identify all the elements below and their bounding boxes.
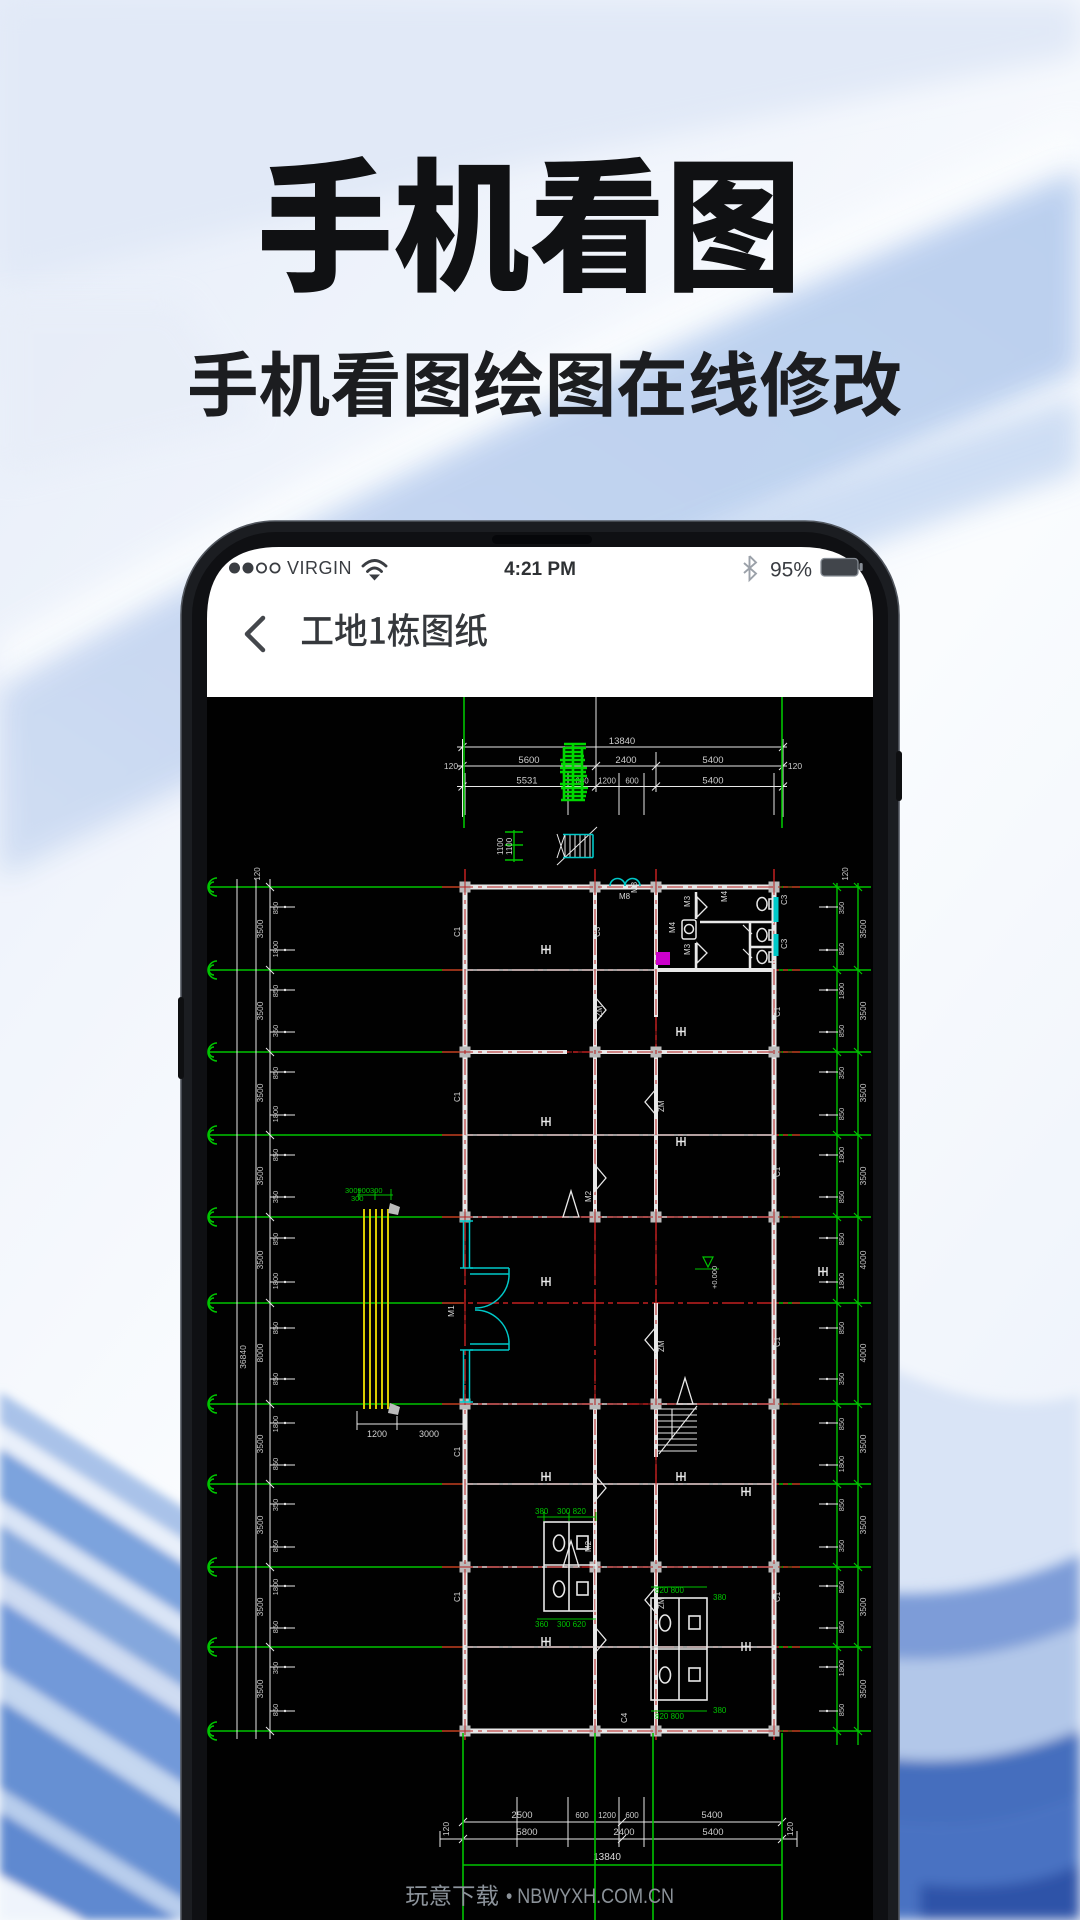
svg-text:350: 350 <box>837 1067 846 1080</box>
svg-text:120: 120 <box>441 1822 451 1836</box>
svg-text:VIRGIN: VIRGIN <box>287 558 352 578</box>
svg-text:850: 850 <box>271 1067 280 1080</box>
svg-text:850: 850 <box>837 943 846 956</box>
svg-text:850: 850 <box>271 985 280 998</box>
svg-text:850: 850 <box>837 1108 846 1121</box>
svg-text:600: 600 <box>625 1811 639 1820</box>
svg-text:120: 120 <box>788 761 802 771</box>
svg-text:380: 380 <box>535 1507 549 1516</box>
svg-text:1800: 1800 <box>271 1106 280 1123</box>
svg-text:3500: 3500 <box>255 1679 265 1698</box>
svg-text:13840: 13840 <box>593 1852 621 1863</box>
svg-text:350: 350 <box>271 1662 280 1675</box>
svg-text:5800: 5800 <box>516 1827 537 1838</box>
svg-text:300 820: 300 820 <box>557 1507 586 1516</box>
svg-text:350: 350 <box>837 1540 846 1553</box>
svg-text:8000: 8000 <box>255 1343 265 1362</box>
svg-text:820 800: 820 800 <box>655 1712 684 1721</box>
svg-text:3500: 3500 <box>858 919 868 938</box>
svg-text:600: 600 <box>625 777 639 786</box>
svg-text:1800: 1800 <box>837 1660 846 1677</box>
svg-text:1800: 1800 <box>271 1273 280 1290</box>
svg-text:850: 850 <box>271 1233 280 1246</box>
svg-text:5400: 5400 <box>701 1810 722 1821</box>
svg-text:350: 350 <box>271 1025 280 1038</box>
svg-text:850: 850 <box>837 1499 846 1512</box>
svg-text:850: 850 <box>271 1704 280 1717</box>
svg-text:850: 850 <box>837 1191 846 1204</box>
svg-text:M8: M8 <box>619 892 631 901</box>
svg-text:120: 120 <box>785 1822 795 1836</box>
svg-text:850: 850 <box>837 1621 846 1634</box>
svg-text:600: 600 <box>575 1811 589 1820</box>
svg-text:C1: C1 <box>453 1591 462 1602</box>
svg-text:3500: 3500 <box>858 1679 868 1698</box>
svg-text:3000: 3000 <box>419 1429 439 1439</box>
svg-text:2500: 2500 <box>511 1810 532 1821</box>
svg-text:1100: 1100 <box>496 837 505 855</box>
svg-text:3500: 3500 <box>255 1434 265 1453</box>
svg-text:4:21 PM: 4:21 PM <box>504 559 576 580</box>
svg-text:95%: 95% <box>770 559 812 582</box>
svg-text:2400: 2400 <box>615 755 636 766</box>
svg-text:C1: C1 <box>773 1006 782 1017</box>
svg-text:1100: 1100 <box>505 837 514 855</box>
svg-text:1200: 1200 <box>367 1429 387 1439</box>
svg-text:3500: 3500 <box>255 1515 265 1534</box>
svg-text:C1: C1 <box>773 1166 782 1177</box>
svg-text:C1: C1 <box>453 1446 462 1457</box>
svg-text:850: 850 <box>837 1322 846 1335</box>
svg-text:3500: 3500 <box>858 1001 868 1020</box>
svg-text:C3: C3 <box>780 938 789 949</box>
svg-text:350: 350 <box>837 1373 846 1386</box>
svg-text:3500: 3500 <box>858 1515 868 1534</box>
svg-text:120: 120 <box>444 761 458 771</box>
svg-text:3500: 3500 <box>255 1083 265 1102</box>
svg-text:300 620: 300 620 <box>557 1620 586 1629</box>
svg-text:3500: 3500 <box>858 1434 868 1453</box>
svg-text:1800: 1800 <box>271 1579 280 1596</box>
svg-text:1800: 1800 <box>271 1416 280 1433</box>
svg-text:850: 850 <box>837 1233 846 1246</box>
svg-text:M8: M8 <box>630 881 639 893</box>
svg-text:850: 850 <box>837 1025 846 1038</box>
svg-text:850: 850 <box>271 1458 280 1471</box>
svg-text:850: 850 <box>837 1581 846 1594</box>
svg-text:3500: 3500 <box>255 1001 265 1020</box>
svg-text:C1: C1 <box>773 1336 782 1347</box>
svg-text:5400: 5400 <box>702 1827 723 1838</box>
svg-text:3500: 3500 <box>255 1250 265 1269</box>
svg-text:1800: 1800 <box>837 1147 846 1164</box>
svg-text:1800: 1800 <box>271 941 280 958</box>
svg-text:850: 850 <box>271 902 280 915</box>
svg-text:380: 380 <box>713 1593 727 1602</box>
svg-text:1800: 1800 <box>837 1273 846 1290</box>
svg-text:850: 850 <box>271 1621 280 1634</box>
svg-text:C1: C1 <box>453 1091 462 1102</box>
svg-text:+0.000: +0.000 <box>710 1266 719 1289</box>
svg-text:ZM: ZM <box>657 1597 666 1609</box>
svg-text:350: 350 <box>271 1499 280 1512</box>
svg-text:M1: M1 <box>446 1305 456 1317</box>
svg-text:2400: 2400 <box>613 1827 634 1838</box>
svg-text:13840: 13840 <box>609 736 635 747</box>
svg-text:350: 350 <box>837 902 846 915</box>
svg-text:C3: C3 <box>593 926 602 937</box>
svg-text:M4: M4 <box>720 890 729 902</box>
svg-text:ZM: ZM <box>657 1100 666 1112</box>
svg-text:1800: 1800 <box>837 1456 846 1473</box>
svg-text:3500: 3500 <box>255 1597 265 1616</box>
svg-text:C4: C4 <box>620 1712 629 1723</box>
svg-text:120: 120 <box>253 867 262 881</box>
svg-text:360: 360 <box>535 1620 549 1629</box>
svg-text:5600: 5600 <box>518 755 539 766</box>
svg-text:850: 850 <box>837 1704 846 1717</box>
svg-text:C1: C1 <box>453 926 462 937</box>
svg-text:850: 850 <box>837 1418 846 1431</box>
svg-text:C3: C3 <box>780 894 789 905</box>
svg-text:M2: M2 <box>584 1190 593 1202</box>
svg-text:850: 850 <box>271 1540 280 1553</box>
svg-text:ZM: ZM <box>657 1340 666 1352</box>
svg-text:M3: M3 <box>683 895 692 907</box>
svg-text:4000: 4000 <box>858 1343 868 1362</box>
svg-text:5400: 5400 <box>702 776 723 787</box>
svg-text:3500: 3500 <box>255 919 265 938</box>
svg-text:M4: M4 <box>668 921 677 933</box>
svg-text:1200: 1200 <box>598 1811 616 1820</box>
svg-text:120: 120 <box>841 867 850 881</box>
svg-text:380: 380 <box>713 1706 727 1715</box>
svg-text:3500: 3500 <box>255 1166 265 1185</box>
svg-text:• NBWYXH.COM.CN: • NBWYXH.COM.CN <box>506 1885 674 1908</box>
svg-text:3500: 3500 <box>858 1597 868 1616</box>
svg-text:3500: 3500 <box>858 1166 868 1185</box>
svg-text:5531: 5531 <box>516 776 537 787</box>
svg-text:M3: M3 <box>683 943 692 955</box>
svg-text:1200: 1200 <box>598 777 616 786</box>
svg-text:1800: 1800 <box>837 983 846 1000</box>
svg-text:3500: 3500 <box>858 1083 868 1102</box>
svg-text:4000: 4000 <box>858 1250 868 1269</box>
svg-text:36840: 36840 <box>238 1345 248 1369</box>
svg-text:C1: C1 <box>773 1591 782 1602</box>
svg-text:5400: 5400 <box>702 755 723 766</box>
svg-text:ZM: ZM <box>595 1005 604 1017</box>
